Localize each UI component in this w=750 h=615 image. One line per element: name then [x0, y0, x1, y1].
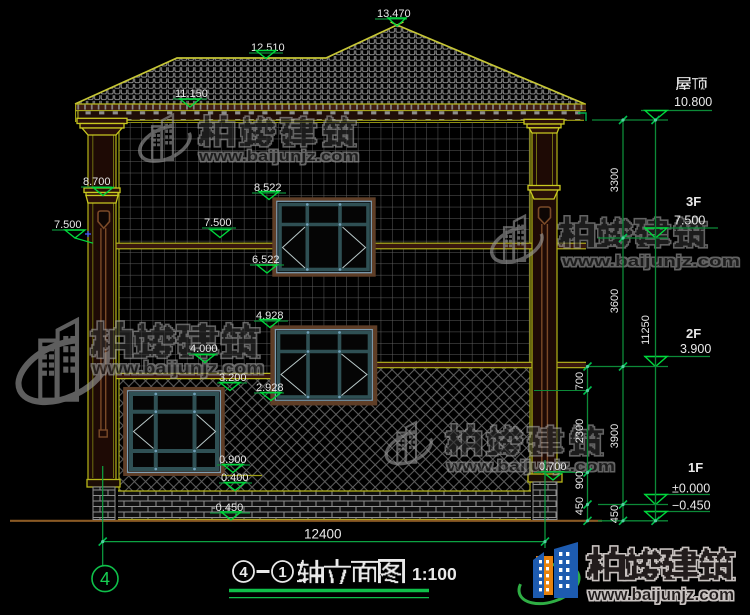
svg-text:11.150: 11.150 — [175, 88, 208, 100]
svg-text:7.500: 7.500 — [674, 214, 705, 228]
svg-text:450: 450 — [609, 505, 621, 523]
svg-text:4: 4 — [239, 564, 248, 581]
svg-text:1: 1 — [278, 564, 286, 581]
svg-text:3600: 3600 — [609, 289, 621, 313]
svg-text:±0.000: ±0.000 — [672, 482, 710, 496]
svg-text:4: 4 — [100, 569, 110, 589]
svg-text:www.baijunjz.com: www.baijunjz.com — [198, 149, 359, 165]
svg-text:3F: 3F — [686, 194, 701, 209]
svg-text:8.700: 8.700 — [83, 176, 111, 188]
svg-text:3900: 3900 — [609, 424, 621, 448]
svg-text:1:100: 1:100 — [412, 564, 457, 584]
svg-text:10.800: 10.800 — [674, 95, 712, 109]
svg-text:700: 700 — [574, 372, 586, 390]
svg-text:3300: 3300 — [609, 168, 621, 192]
svg-text:0.700: 0.700 — [539, 461, 567, 473]
svg-text:12400: 12400 — [304, 527, 342, 542]
svg-text:4.000: 4.000 — [190, 343, 218, 355]
svg-text:2F: 2F — [686, 326, 701, 341]
svg-text:3.900: 3.900 — [680, 342, 711, 356]
svg-text:1F: 1F — [688, 460, 703, 475]
svg-text:7.500: 7.500 — [204, 217, 232, 229]
svg-text:www.baijunjz.com: www.baijunjz.com — [587, 585, 734, 604]
svg-text:www.baijunjz.com: www.baijunjz.com — [561, 254, 740, 270]
svg-text:−0.450: −0.450 — [672, 499, 711, 513]
svg-text:900: 900 — [574, 471, 586, 489]
svg-text:www.baijunjz.com: www.baijunjz.com — [446, 459, 615, 475]
svg-text:450: 450 — [574, 497, 586, 515]
svg-text:7.500: 7.500 — [54, 219, 82, 231]
svg-text:6.522: 6.522 — [252, 254, 280, 266]
svg-text:12.510: 12.510 — [251, 42, 285, 54]
svg-text:11250: 11250 — [640, 315, 652, 345]
svg-text:2300: 2300 — [574, 419, 586, 443]
